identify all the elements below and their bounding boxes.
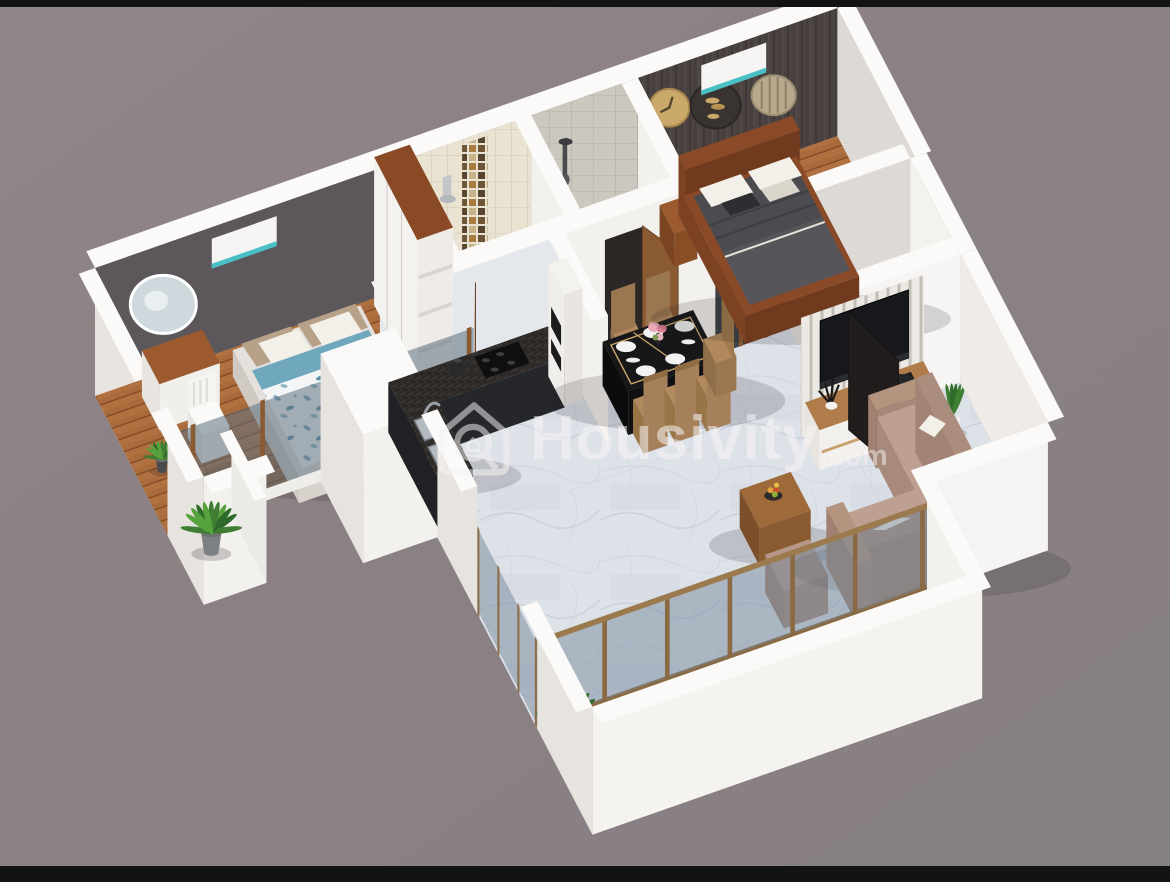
dressing-mirror [130, 275, 196, 333]
letterbox-bar-bottom [0, 866, 1170, 882]
floor-plan-render: Housivity .com [0, 0, 1170, 882]
apartment-3d-scene [0, 0, 1170, 882]
slatted-round-mirror [752, 75, 796, 115]
letterbox-bar-top [0, 0, 1170, 7]
